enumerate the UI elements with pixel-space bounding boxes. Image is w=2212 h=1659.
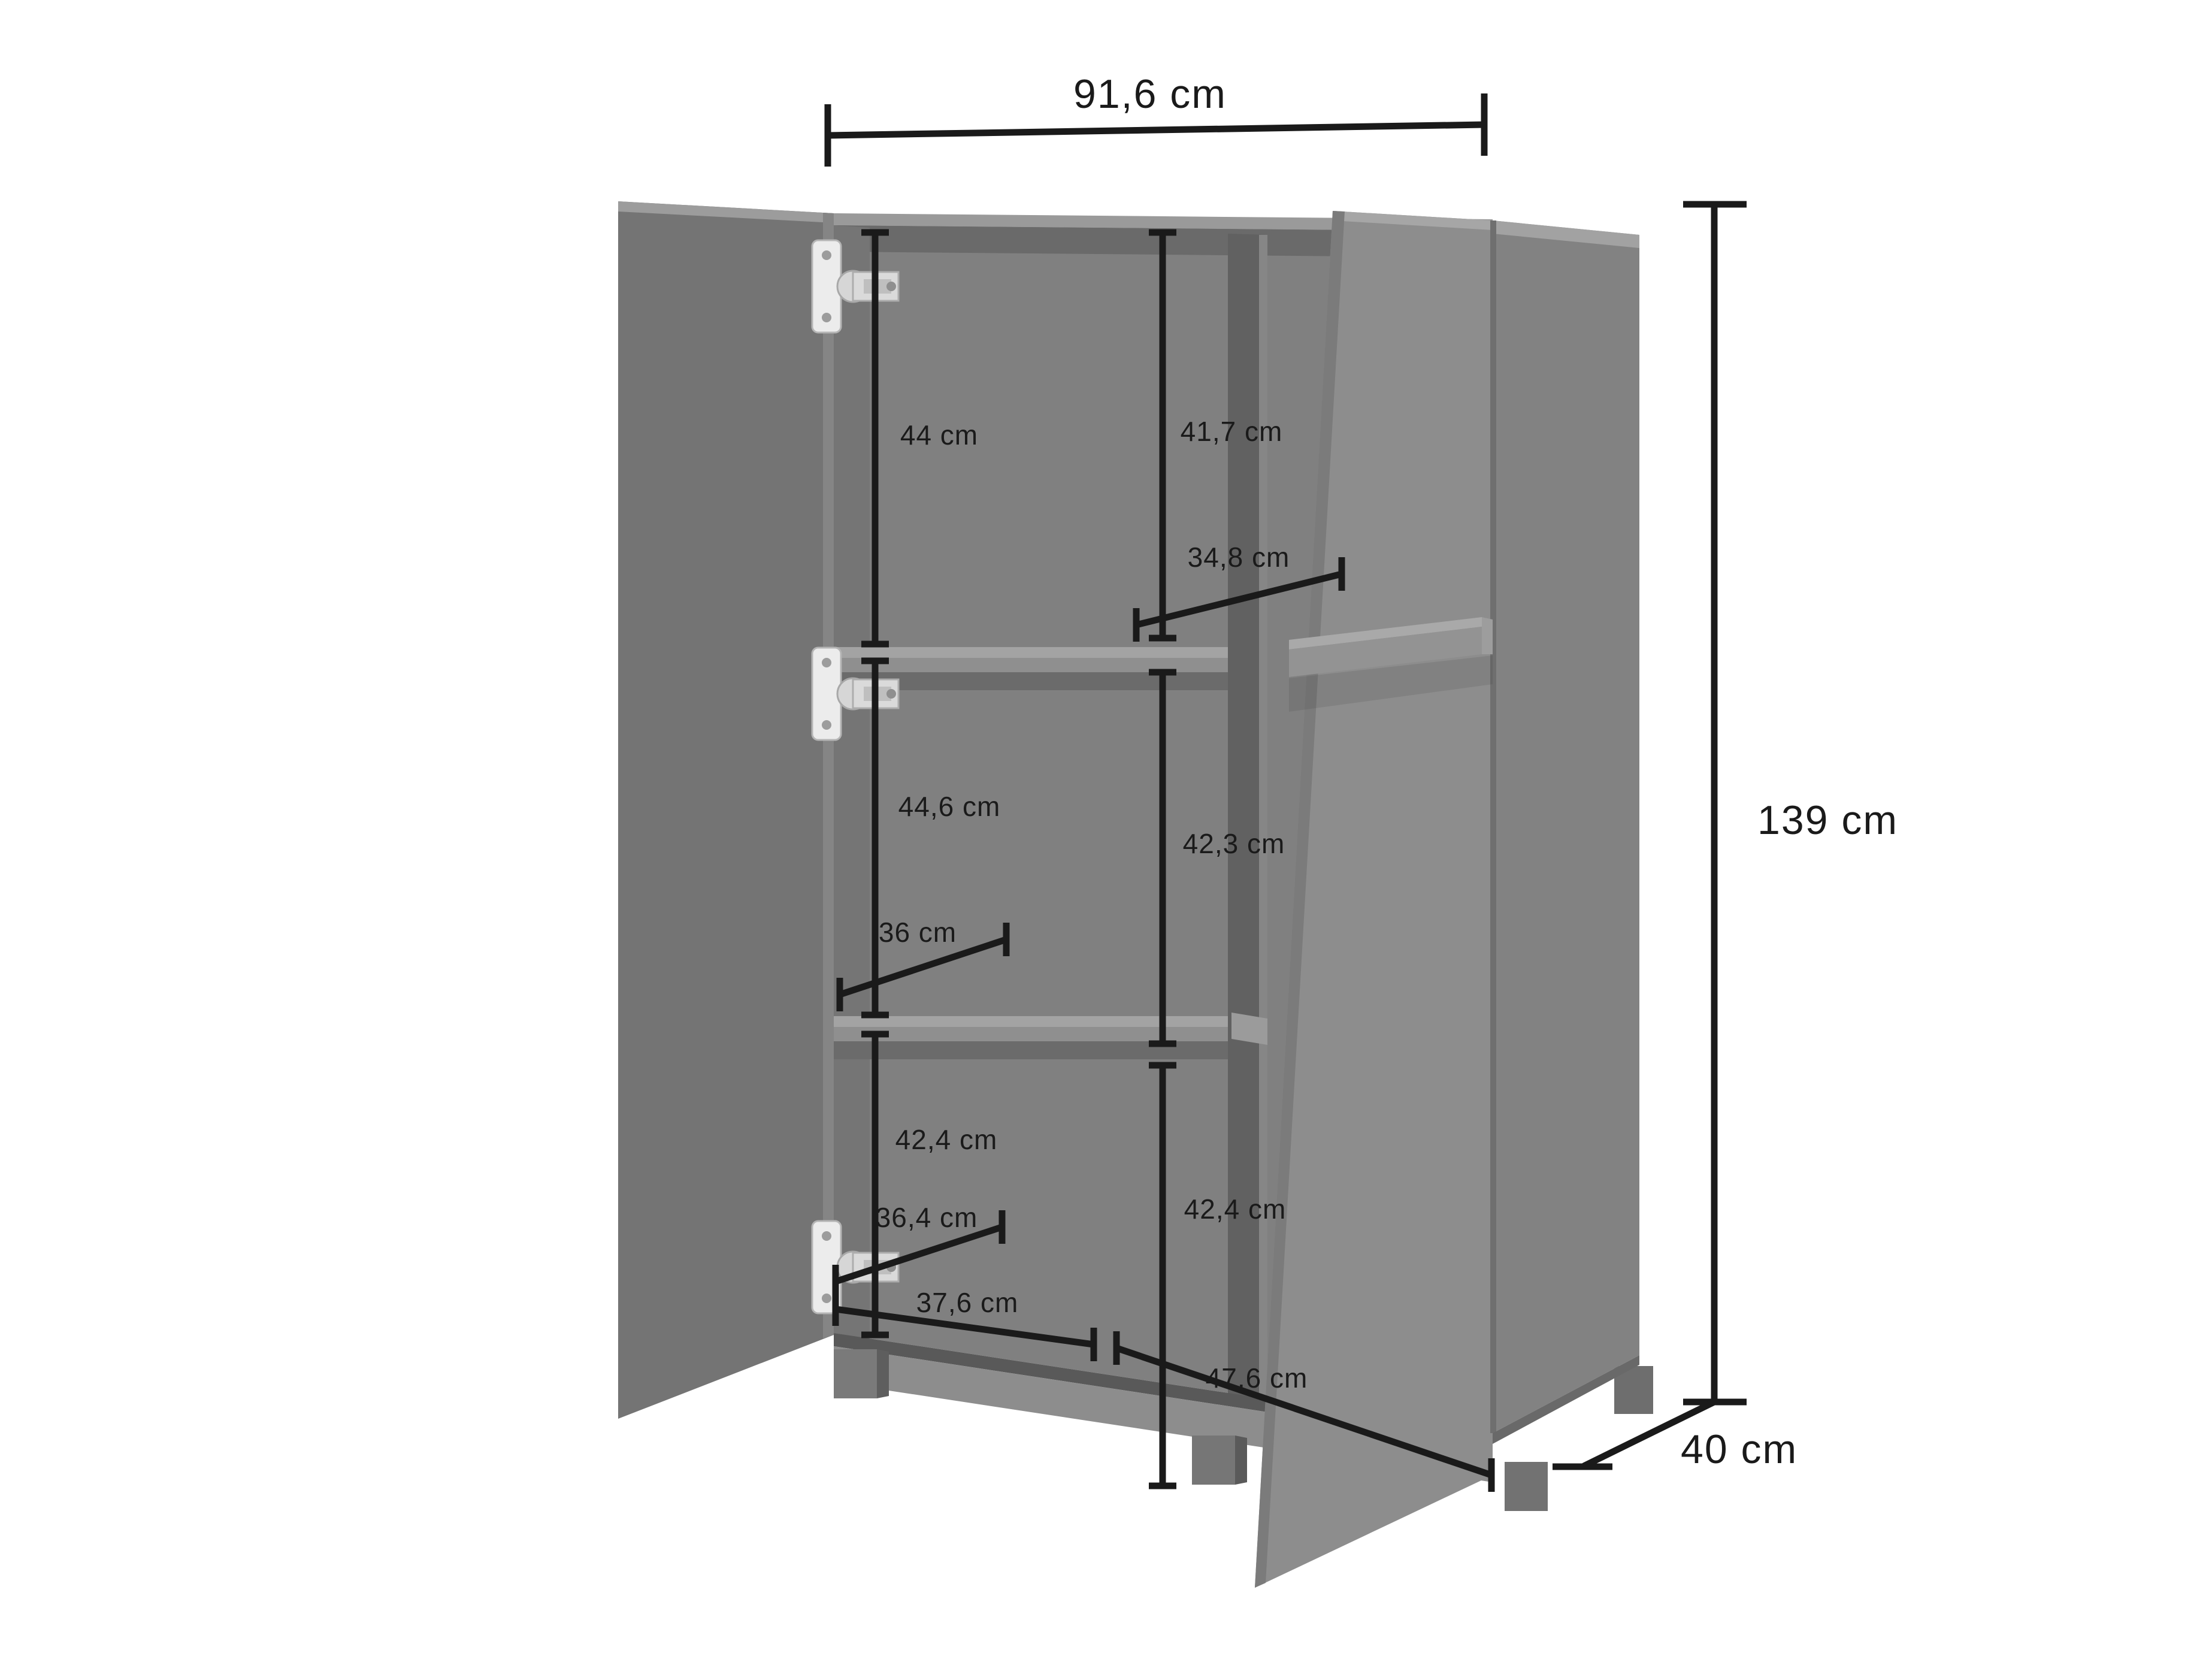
dim-label-left-compartment-width: 37,6 cm xyxy=(916,1287,1019,1318)
dim-label-right-middle-height: 42,3 cm xyxy=(1183,828,1285,859)
dim-label-right-top-height: 41,7 cm xyxy=(1181,416,1283,447)
dim-label-left-top-height: 44 cm xyxy=(900,419,978,451)
interior-left-shadow xyxy=(834,225,870,1339)
foot-right-front xyxy=(1505,1462,1548,1511)
hinge-screw-icon xyxy=(822,1294,831,1303)
dim-label-right-bottom-height: 42,4 cm xyxy=(1184,1193,1287,1225)
dim-label-left-shelf-depth: 36 cm xyxy=(879,917,957,948)
dim-label-right-compartment-width: 47,6 cm xyxy=(1206,1362,1308,1394)
foot-left-front xyxy=(834,1349,877,1398)
foot-center-front xyxy=(1192,1436,1235,1485)
right-side-panel xyxy=(1493,220,1639,1433)
dim-label-left-bottom-depth: 36,4 cm xyxy=(876,1202,978,1233)
hinge-screw-icon xyxy=(822,720,831,730)
right-front-edge-line xyxy=(1490,220,1496,1433)
dim-label-overall-width: 91,6 cm xyxy=(1073,71,1227,117)
center-divider-edge xyxy=(1259,235,1267,1400)
hinge-screw-icon xyxy=(822,313,831,322)
hinge-screw-icon xyxy=(886,282,896,291)
right-shelf-1-cap xyxy=(1482,617,1493,654)
foot-center-side xyxy=(1235,1436,1247,1485)
hinge-screw-icon xyxy=(886,689,896,699)
dim-label-right-shelf-depth: 34,8 cm xyxy=(1188,542,1290,573)
dim-label-left-bottom-height: 42,4 cm xyxy=(895,1124,998,1155)
cabinet-dimension-diagram: 91,6 cm 139 cm 40 cm 44 cm 44,6 cm 42,4 … xyxy=(0,0,2212,1659)
left-shelf-1-top xyxy=(834,647,1228,658)
left-door-inner-edge xyxy=(823,213,834,1338)
dim-label-left-middle-height: 44,6 cm xyxy=(898,791,1001,822)
dim-label-overall-height: 139 cm xyxy=(1757,797,1898,843)
left-door-panel xyxy=(618,201,834,1419)
foot-left-side xyxy=(877,1349,889,1398)
hinge-screw-icon xyxy=(822,1231,831,1241)
hinge-screw-icon xyxy=(822,250,831,260)
left-shelf-2-top xyxy=(834,1016,1228,1027)
hinge-screw-icon xyxy=(822,658,831,667)
left-shelf-2-front xyxy=(834,1027,1228,1041)
dim-label-overall-depth: 40 cm xyxy=(1681,1427,1798,1472)
